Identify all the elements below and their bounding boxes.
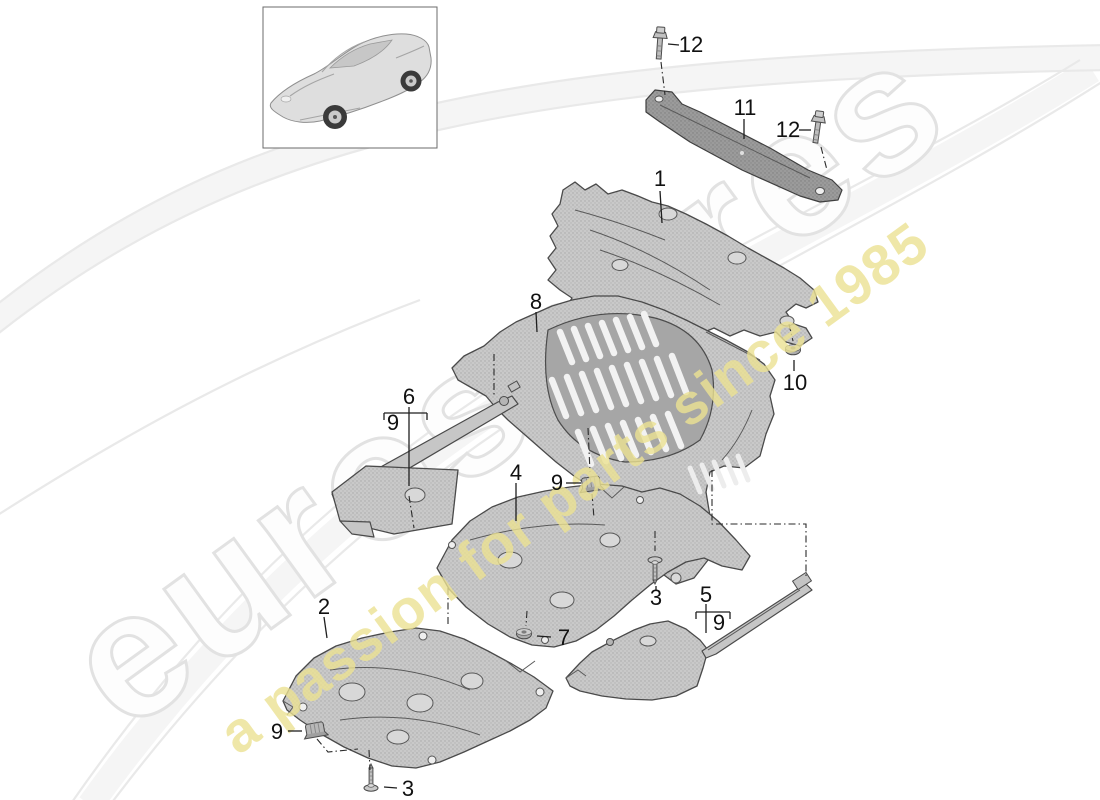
brace-hole bbox=[816, 188, 825, 195]
callout-3-lower[interactable]: 3 bbox=[402, 776, 414, 800]
rail-end-bolt bbox=[500, 397, 509, 406]
screw-3-lower[interactable] bbox=[364, 764, 378, 791]
callout-6[interactable]: 6 bbox=[403, 384, 415, 409]
callout-3-upper[interactable]: 3 bbox=[650, 585, 662, 610]
callout-11[interactable]: 11 bbox=[734, 95, 757, 120]
callout-9-bottom[interactable]: 9 bbox=[271, 719, 283, 744]
brace-dimple bbox=[740, 151, 744, 155]
callout-1[interactable]: 1 bbox=[654, 166, 666, 191]
shield-boss bbox=[612, 260, 628, 271]
callout-2[interactable]: 2 bbox=[318, 594, 330, 619]
bolt-12-left[interactable] bbox=[652, 27, 668, 60]
cover-hole bbox=[637, 497, 644, 504]
cover-hole bbox=[428, 756, 436, 764]
cover-hole bbox=[536, 688, 544, 696]
car-headlight bbox=[281, 96, 291, 102]
car-thumbnail[interactable] bbox=[263, 7, 437, 148]
parts-diagram-page: eurospares bbox=[0, 0, 1100, 800]
callout-9-bracket5[interactable]: 9 bbox=[713, 610, 725, 635]
parts-diagram-canvas: eurospares bbox=[0, 0, 1100, 800]
cover-boss bbox=[671, 573, 681, 583]
cover-recess bbox=[550, 592, 574, 608]
nut-7[interactable] bbox=[517, 629, 532, 639]
cover-recess bbox=[407, 694, 433, 712]
callout-8[interactable]: 8 bbox=[530, 289, 542, 314]
callout-4[interactable]: 4 bbox=[510, 460, 522, 485]
callout-5[interactable]: 5 bbox=[700, 582, 712, 607]
callout-9-bracket6[interactable]: 9 bbox=[387, 410, 399, 435]
cover-recess bbox=[600, 533, 620, 547]
cover-recess bbox=[461, 673, 483, 689]
cover-stud bbox=[607, 639, 614, 646]
cover-hole bbox=[542, 637, 549, 644]
rail-boss bbox=[405, 488, 425, 502]
callout-9-center[interactable]: 9 bbox=[551, 470, 563, 495]
cover-recess bbox=[387, 730, 409, 744]
brace-hole bbox=[655, 96, 663, 102]
callout-10[interactable]: 10 bbox=[783, 370, 807, 395]
cover-recess bbox=[640, 636, 656, 646]
shield-boss bbox=[728, 252, 746, 264]
callout-12-left[interactable]: 12 bbox=[679, 32, 703, 57]
callout-7[interactable]: 7 bbox=[558, 625, 570, 650]
callout-12-right[interactable]: 12 bbox=[776, 117, 800, 142]
